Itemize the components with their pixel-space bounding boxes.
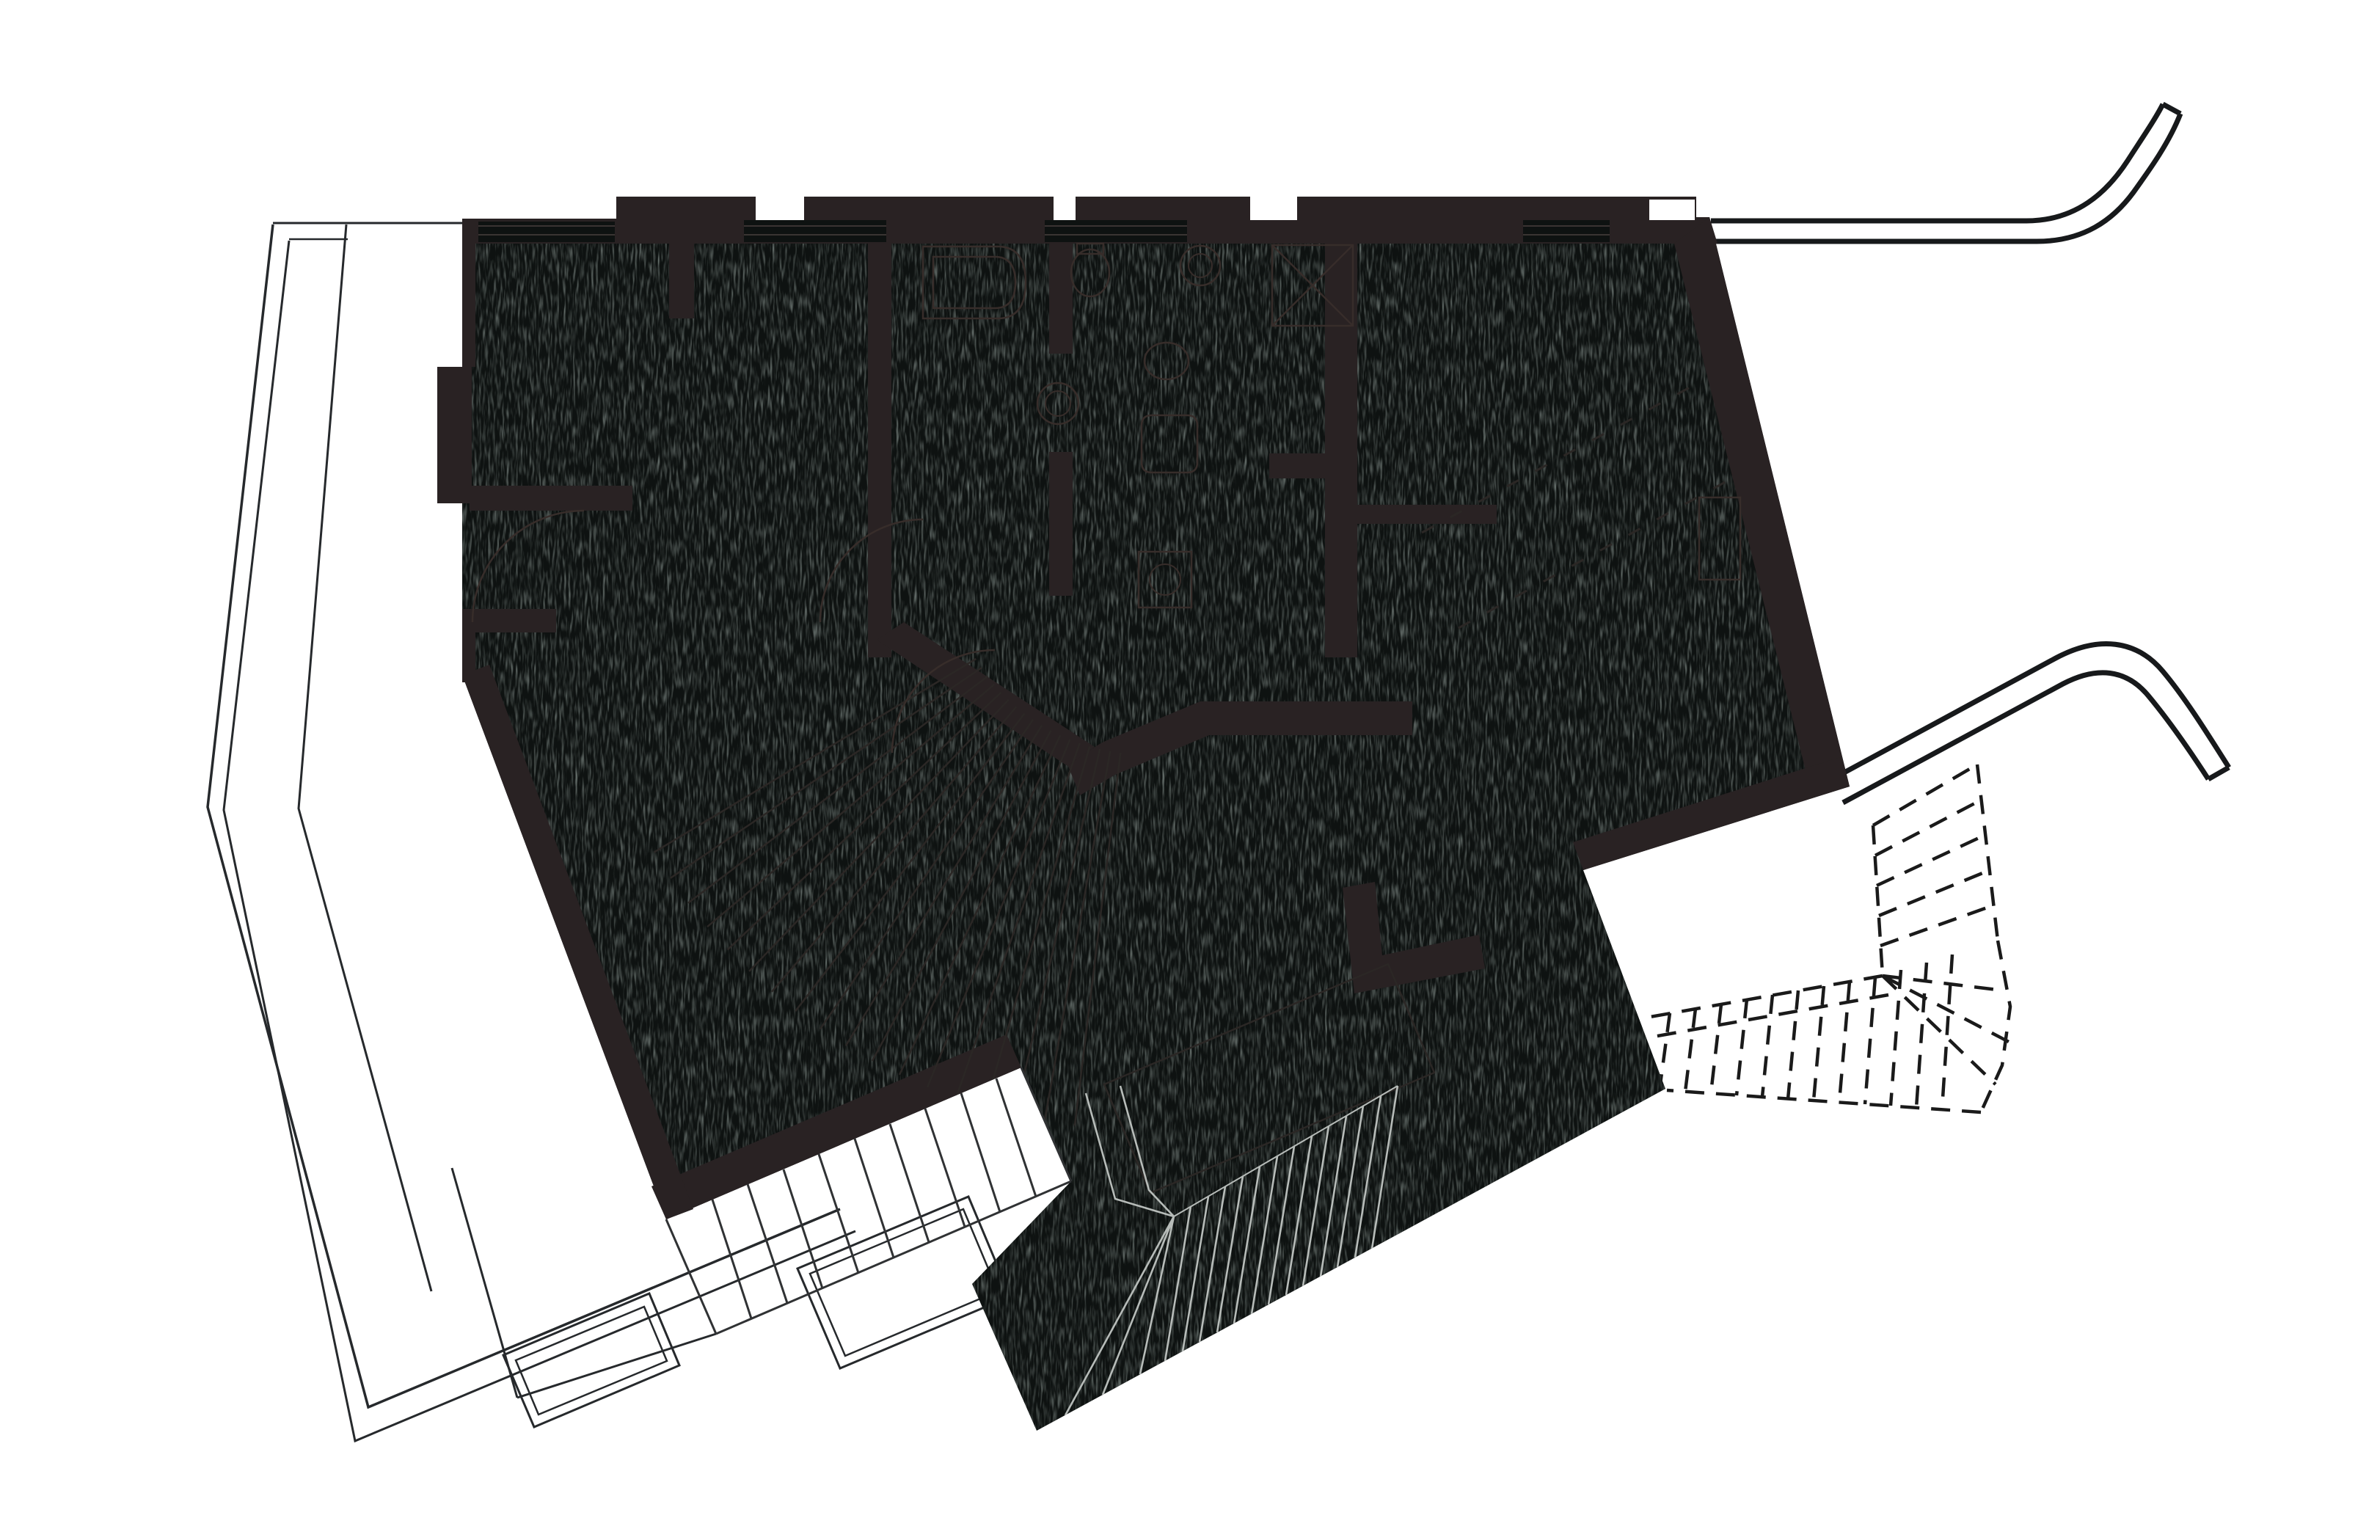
ramp-path-mid-end-cap — [2208, 767, 2229, 779]
ramp-path-mid-lower-line — [1843, 673, 2208, 803]
interior-wall-2 — [868, 242, 891, 657]
facade-notch-3 — [1250, 194, 1297, 220]
entry-pier — [437, 367, 472, 503]
dashed-stair-upper-flight-treads — [1875, 800, 1993, 946]
dashed-stair-upper-flight-left-edge — [1873, 825, 1883, 976]
interior-wall-8 — [440, 609, 556, 632]
floor-plan — [0, 0, 2380, 1540]
facade-notch-1 — [756, 194, 804, 220]
ramp-path-top-upper-line — [1711, 104, 2163, 221]
ramp-path-top-end-cap — [2163, 104, 2180, 114]
interior-wall-3a — [1049, 242, 1073, 354]
dashed-stair-lower-flight-top-edge — [1642, 976, 1883, 1018]
perimeter-wall-left-upper-a — [462, 219, 475, 367]
interior-wall-1 — [669, 242, 694, 318]
interior-wall-3b — [1049, 452, 1073, 596]
dashed-stair-upper-flight-top-tread — [1873, 764, 1977, 825]
site-walkway-bottom-edge — [517, 1334, 716, 1398]
facade-notch-4 — [1649, 200, 1695, 220]
facade-notch-2 — [1054, 194, 1076, 220]
window-gap-4 — [1523, 220, 1610, 242]
window-gap-1 — [478, 222, 615, 242]
dashed-stair-winder-outer-edge — [1981, 941, 2010, 1112]
planter-box-left-inner — [516, 1307, 667, 1415]
interior-wall-7 — [470, 486, 632, 511]
ramp-path-mid-upper-line — [1832, 644, 2229, 779]
window-gap-3 — [1045, 220, 1187, 242]
floor-plan-drawing — [0, 0, 2380, 1540]
dashed-stair-lower-flight-treads — [1660, 955, 1952, 1109]
site-terrace-edge-line — [299, 225, 431, 1291]
dashed-stair-lower-flight-bottom-edge — [1667, 1090, 1981, 1112]
window-gap-2 — [744, 220, 886, 242]
small-stair-left-edge — [666, 1219, 716, 1334]
interior-wall-5 — [1269, 453, 1326, 478]
dashed-stair-upper-flight-right-edge — [1977, 764, 1998, 941]
interior-wall-6 — [1357, 505, 1497, 524]
